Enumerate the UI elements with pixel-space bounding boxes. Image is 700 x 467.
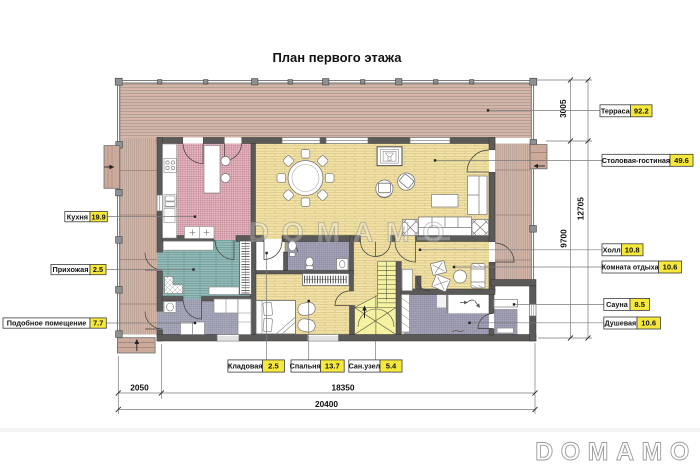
svg-text:19.9: 19.9 <box>91 212 105 221</box>
svg-text:8.5: 8.5 <box>634 300 645 309</box>
svg-text:5.4: 5.4 <box>386 362 397 371</box>
svg-text:Спальня: Спальня <box>290 362 321 371</box>
svg-text:20400: 20400 <box>315 399 338 409</box>
svg-text:Подобное помещение: Подобное помещение <box>7 319 87 328</box>
svg-text:7.7: 7.7 <box>93 319 103 328</box>
svg-text:Терраса: Терраса <box>601 106 631 115</box>
svg-text:Сан.узел: Сан.узел <box>349 362 381 371</box>
svg-text:10.6: 10.6 <box>663 263 678 272</box>
svg-text:Прихожая: Прихожая <box>52 265 88 274</box>
svg-text:2.5: 2.5 <box>93 265 103 274</box>
svg-text:2.5: 2.5 <box>268 362 279 371</box>
svg-text:10.8: 10.8 <box>625 246 640 255</box>
svg-text:Столовая-гостиная: Столовая-гостиная <box>602 156 670 165</box>
svg-text:DOMAMO: DOMAMO <box>249 217 458 248</box>
svg-text:3005: 3005 <box>558 99 568 118</box>
svg-text:13.7: 13.7 <box>325 362 340 371</box>
svg-text:Комната отдыха: Комната отдыха <box>602 265 659 272</box>
svg-text:Кладовая: Кладовая <box>228 362 262 371</box>
svg-text:Холл: Холл <box>603 245 621 254</box>
svg-text:18350: 18350 <box>331 383 354 393</box>
svg-text:Кухня: Кухня <box>67 212 88 221</box>
svg-text:12705: 12705 <box>576 197 586 220</box>
svg-text:92.2: 92.2 <box>634 107 649 116</box>
svg-text:49.6: 49.6 <box>674 156 689 165</box>
svg-text:Сауна: Сауна <box>606 300 629 309</box>
svg-text:План первого этажа: План первого этажа <box>272 50 402 65</box>
svg-text:Душевая: Душевая <box>605 319 637 328</box>
svg-text:DOMAMO: DOMAMO <box>535 438 697 466</box>
svg-text:10.6: 10.6 <box>641 319 656 328</box>
svg-text:9700: 9700 <box>559 229 569 248</box>
svg-text:2050: 2050 <box>130 383 149 393</box>
